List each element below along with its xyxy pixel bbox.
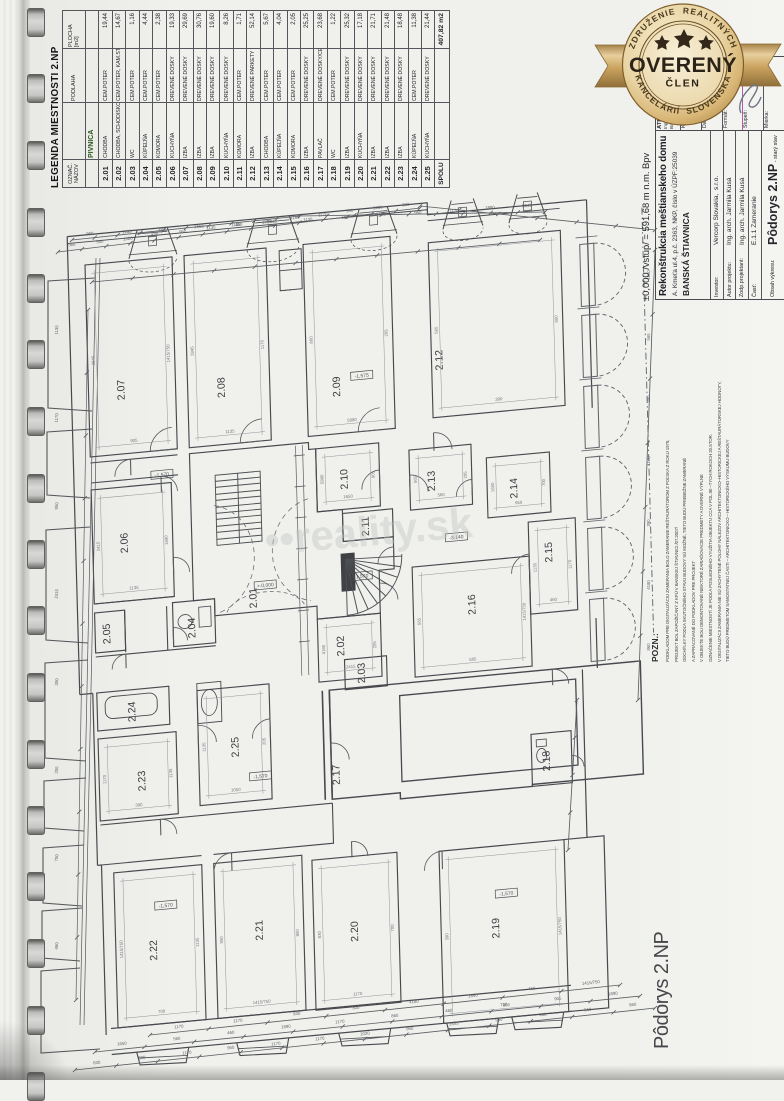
svg-text:460: 460 xyxy=(528,986,536,992)
svg-text:1650: 1650 xyxy=(194,224,204,230)
svg-text:1170: 1170 xyxy=(271,1040,281,1046)
svg-text:2.09: 2.09 xyxy=(331,376,344,398)
svg-text:205: 205 xyxy=(372,640,377,648)
svg-text:1135: 1135 xyxy=(231,222,241,228)
svg-text:2845: 2845 xyxy=(522,203,532,209)
svg-text:2415: 2415 xyxy=(96,541,101,552)
svg-text:1020: 1020 xyxy=(123,235,134,241)
svg-text:565: 565 xyxy=(68,242,76,248)
svg-text:1415/750: 1415/750 xyxy=(521,602,526,621)
svg-text:1135: 1135 xyxy=(532,562,537,572)
svg-text:2.20: 2.20 xyxy=(349,920,362,942)
svg-text:2415: 2415 xyxy=(346,664,356,670)
svg-text:830: 830 xyxy=(138,1055,146,1061)
svg-text:2.24: 2.24 xyxy=(126,701,139,723)
svg-text:300: 300 xyxy=(402,202,410,208)
svg-text:2.08: 2.08 xyxy=(215,377,228,399)
svg-text:460: 460 xyxy=(445,1008,453,1014)
svg-text:1170: 1170 xyxy=(449,208,459,214)
svg-text:950: 950 xyxy=(227,1045,235,1051)
svg-text:1650: 1650 xyxy=(117,1040,128,1046)
svg-text:2.02: 2.02 xyxy=(335,635,348,657)
svg-text:1170: 1170 xyxy=(233,1017,243,1023)
svg-text:1890: 1890 xyxy=(164,534,169,545)
svg-text:2.04: 2.04 xyxy=(186,617,199,639)
svg-text:950: 950 xyxy=(54,502,60,510)
svg-text:460: 460 xyxy=(54,942,60,950)
svg-text:830: 830 xyxy=(293,1011,301,1017)
svg-text:1890: 1890 xyxy=(468,992,479,998)
svg-text:1050: 1050 xyxy=(231,787,241,793)
svg-text:560: 560 xyxy=(438,492,446,498)
svg-text:2.23: 2.23 xyxy=(136,770,149,792)
svg-text:700: 700 xyxy=(390,923,395,931)
svg-text:OVERENÝ: OVERENÝ xyxy=(629,52,737,77)
svg-text:950: 950 xyxy=(86,231,94,236)
svg-text:2.05: 2.05 xyxy=(101,623,114,645)
svg-text:2.16: 2.16 xyxy=(466,594,479,616)
svg-text:830: 830 xyxy=(151,232,159,238)
svg-text:860: 860 xyxy=(295,928,300,936)
svg-text:1415/750: 1415/750 xyxy=(165,344,170,363)
svg-text:1170: 1170 xyxy=(353,991,363,997)
svg-text:1135: 1135 xyxy=(122,229,132,235)
svg-text:700: 700 xyxy=(158,1008,166,1014)
svg-text:905: 905 xyxy=(370,470,375,478)
svg-text:860: 860 xyxy=(309,336,314,344)
svg-text:2845: 2845 xyxy=(267,219,277,225)
svg-text:4180: 4180 xyxy=(290,214,301,220)
svg-text:2.15: 2.15 xyxy=(543,541,556,563)
svg-text:1650: 1650 xyxy=(490,482,495,493)
svg-text:1890: 1890 xyxy=(608,990,619,996)
svg-text:905: 905 xyxy=(130,437,138,443)
svg-text:860: 860 xyxy=(629,1002,637,1008)
svg-text:565: 565 xyxy=(413,475,418,483)
svg-text:950: 950 xyxy=(495,1017,503,1023)
svg-text:390: 390 xyxy=(135,802,143,808)
svg-text:••reality.sk: ••reality.sk xyxy=(263,499,475,564)
svg-text:565: 565 xyxy=(417,617,422,625)
svg-text:2.03: 2.03 xyxy=(356,662,369,684)
svg-text:1135: 1135 xyxy=(168,768,173,778)
svg-text:2.06: 2.06 xyxy=(118,532,131,554)
svg-text:1170: 1170 xyxy=(260,339,265,349)
svg-text:1170: 1170 xyxy=(315,1035,325,1041)
svg-text:2.22: 2.22 xyxy=(148,939,161,961)
svg-text:2.14: 2.14 xyxy=(508,477,521,499)
svg-text:565: 565 xyxy=(434,326,439,334)
svg-text:5980: 5980 xyxy=(373,204,384,210)
svg-text:1020: 1020 xyxy=(360,1030,371,1036)
svg-text:1135: 1135 xyxy=(129,585,139,591)
svg-text:460: 460 xyxy=(341,215,349,220)
svg-text:1170: 1170 xyxy=(182,1049,192,1055)
svg-text:2.01: 2.01 xyxy=(247,587,260,609)
svg-text:390: 390 xyxy=(495,396,503,402)
svg-text:1170: 1170 xyxy=(174,1023,184,1029)
svg-text:1135: 1135 xyxy=(225,428,235,434)
svg-text:950: 950 xyxy=(515,500,523,506)
svg-text:560: 560 xyxy=(173,1036,181,1042)
svg-text:205: 205 xyxy=(384,329,389,337)
svg-text:565: 565 xyxy=(469,656,477,662)
svg-text:4180: 4180 xyxy=(321,644,326,655)
svg-text:700: 700 xyxy=(54,854,60,862)
svg-text:2.10: 2.10 xyxy=(338,468,351,490)
svg-text:205: 205 xyxy=(54,766,60,774)
svg-text:390: 390 xyxy=(444,932,449,940)
svg-text:950: 950 xyxy=(414,210,422,215)
svg-text:460: 460 xyxy=(539,1012,547,1018)
svg-text:1135: 1135 xyxy=(195,937,200,947)
svg-text:1170: 1170 xyxy=(102,774,107,784)
svg-text:1650: 1650 xyxy=(376,212,386,218)
svg-text:2.21: 2.21 xyxy=(253,919,266,941)
svg-text:950: 950 xyxy=(219,936,224,944)
svg-text:2845: 2845 xyxy=(91,355,96,366)
svg-text:950: 950 xyxy=(179,229,187,235)
svg-text:1170: 1170 xyxy=(335,1018,345,1024)
svg-text:2845: 2845 xyxy=(449,1020,460,1026)
svg-text:950: 950 xyxy=(406,1026,414,1032)
svg-text:560: 560 xyxy=(96,239,104,245)
svg-text:1650: 1650 xyxy=(343,493,353,499)
svg-text:905: 905 xyxy=(554,996,562,1002)
svg-text:565: 565 xyxy=(646,333,651,341)
svg-text:460: 460 xyxy=(550,597,558,603)
svg-text:860: 860 xyxy=(554,315,559,323)
svg-text:2.12: 2.12 xyxy=(433,349,446,371)
svg-text:860: 860 xyxy=(503,1002,511,1008)
svg-text:460: 460 xyxy=(227,1030,235,1036)
svg-text:5980: 5980 xyxy=(319,474,324,485)
svg-text:5980: 5980 xyxy=(347,417,357,423)
svg-text:1415/750: 1415/750 xyxy=(253,998,272,1005)
svg-text:2.17: 2.17 xyxy=(330,764,343,786)
svg-text:1170: 1170 xyxy=(54,413,60,423)
svg-text:1650: 1650 xyxy=(158,226,168,232)
svg-text:1890: 1890 xyxy=(281,1023,292,1029)
svg-text:300: 300 xyxy=(54,678,60,686)
svg-text:1415/750: 1415/750 xyxy=(557,916,562,935)
svg-text:1890: 1890 xyxy=(485,205,495,211)
svg-text:560: 560 xyxy=(584,1007,592,1013)
svg-text:300: 300 xyxy=(352,1005,360,1011)
svg-text:2.07: 2.07 xyxy=(115,379,128,401)
svg-text:2.19: 2.19 xyxy=(490,917,503,939)
svg-text:ČLEN: ČLEN xyxy=(666,77,701,90)
svg-text:2.18: 2.18 xyxy=(541,750,554,772)
svg-text:2845: 2845 xyxy=(190,346,195,357)
svg-text:205: 205 xyxy=(463,470,468,478)
svg-text:1415/750: 1415/750 xyxy=(119,940,124,959)
svg-text:1170: 1170 xyxy=(567,559,572,569)
svg-text:830: 830 xyxy=(317,930,322,938)
svg-text:1135: 1135 xyxy=(303,217,313,223)
svg-text:1415/750: 1415/750 xyxy=(582,979,601,986)
svg-text:2415: 2415 xyxy=(54,588,60,598)
svg-text:1135: 1135 xyxy=(54,325,60,335)
svg-text:2.25: 2.25 xyxy=(229,736,242,758)
svg-text:950: 950 xyxy=(346,208,354,214)
svg-text:4180: 4180 xyxy=(409,998,420,1004)
svg-text:205: 205 xyxy=(261,737,266,745)
svg-text:700: 700 xyxy=(541,478,546,486)
svg-text:1135: 1135 xyxy=(201,742,206,752)
svg-text:860: 860 xyxy=(391,1013,399,1019)
